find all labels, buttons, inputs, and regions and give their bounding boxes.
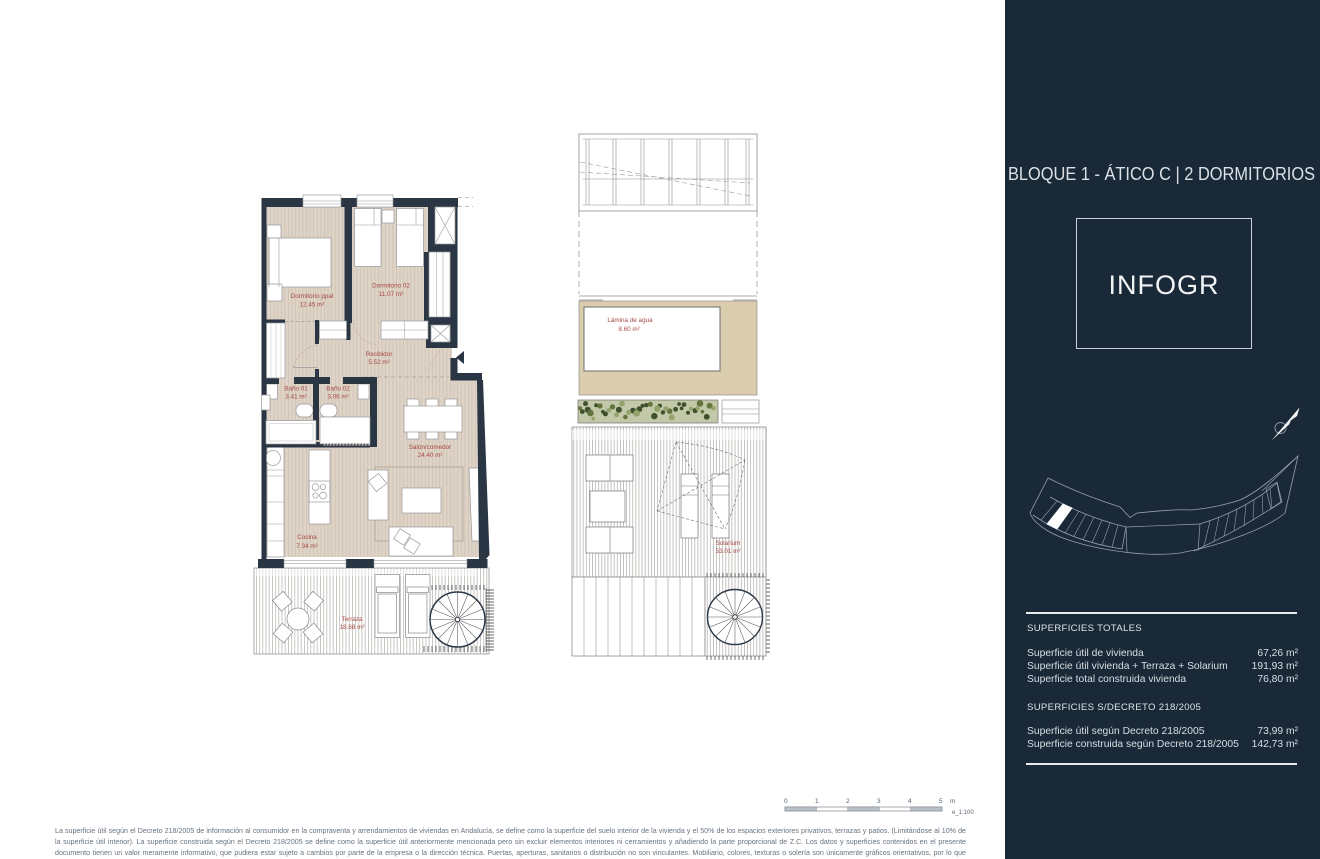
svg-text:Dormitorio 02: Dormitorio 02 xyxy=(372,283,410,290)
svg-text:Salón/comedor: Salón/comedor xyxy=(409,444,451,451)
svg-text:3: 3 xyxy=(877,798,881,805)
svg-text:1: 1 xyxy=(815,798,819,805)
svg-text:4: 4 xyxy=(908,798,912,805)
svg-text:Solarium: Solarium xyxy=(716,540,741,547)
svg-text:5.52 m²: 5.52 m² xyxy=(368,359,389,366)
svg-text:3.06 m²: 3.06 m² xyxy=(327,394,348,401)
svg-text:Terraza: Terraza xyxy=(342,616,363,623)
svg-text:18.68 m²: 18.68 m² xyxy=(340,624,365,631)
svg-text:12.45 m²: 12.45 m² xyxy=(300,302,325,309)
svg-text:0: 0 xyxy=(784,798,788,805)
svg-text:m: m xyxy=(950,798,955,805)
svg-text:Baño 01: Baño 01 xyxy=(284,386,308,393)
svg-text:7.34 m²: 7.34 m² xyxy=(296,543,317,550)
svg-text:Lámina de agua: Lámina de agua xyxy=(607,317,653,324)
svg-text:Cocina: Cocina xyxy=(297,534,317,541)
svg-text:53.01 m²: 53.01 m² xyxy=(716,548,741,555)
svg-text:2: 2 xyxy=(846,798,850,805)
svg-text:e_1:100: e_1:100 xyxy=(952,810,974,816)
svg-text:Recibidor: Recibidor xyxy=(366,351,393,358)
svg-text:Dormitorio ppal: Dormitorio ppal xyxy=(291,293,334,300)
svg-text:5: 5 xyxy=(939,798,943,805)
svg-text:11.07 m²: 11.07 m² xyxy=(379,291,403,298)
svg-text:3.41 m²: 3.41 m² xyxy=(285,394,306,401)
svg-text:Baño 02: Baño 02 xyxy=(326,386,350,393)
svg-text:24.40 m²: 24.40 m² xyxy=(418,452,443,459)
svg-text:8.60 m²: 8.60 m² xyxy=(618,326,639,333)
